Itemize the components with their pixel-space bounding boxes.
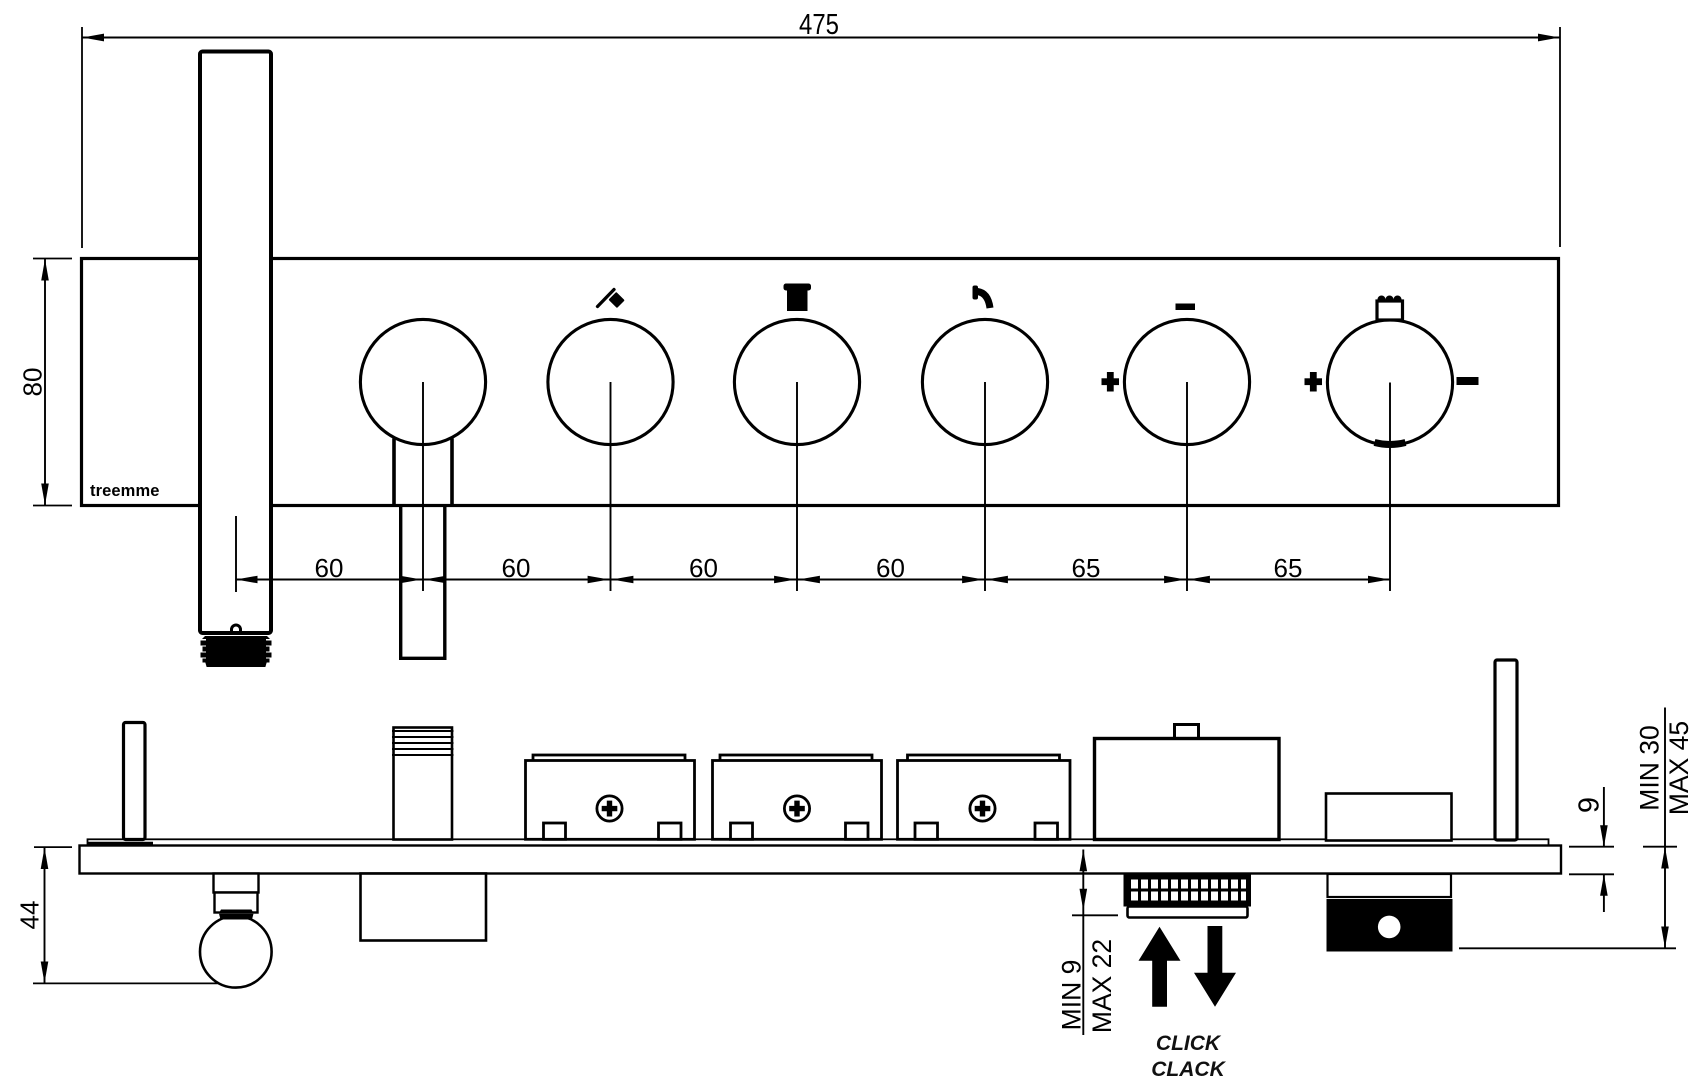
svg-text:MAX 22: MAX 22 bbox=[1087, 939, 1117, 1033]
svg-text:MIN 9: MIN 9 bbox=[1057, 960, 1087, 1031]
svg-text:65: 65 bbox=[1072, 553, 1101, 583]
svg-text:80: 80 bbox=[18, 368, 48, 397]
svg-text:9: 9 bbox=[1574, 797, 1606, 813]
svg-text:60: 60 bbox=[876, 553, 905, 583]
svg-text:CLICK: CLICK bbox=[1156, 1032, 1222, 1055]
svg-text:60: 60 bbox=[502, 553, 531, 583]
svg-text:MIN 30: MIN 30 bbox=[1635, 725, 1665, 810]
svg-text:475: 475 bbox=[799, 8, 839, 41]
svg-text:treemme: treemme bbox=[90, 482, 160, 500]
svg-text:60: 60 bbox=[689, 553, 718, 583]
svg-text:CLACK: CLACK bbox=[1151, 1058, 1226, 1078]
svg-text:MAX 45: MAX 45 bbox=[1664, 721, 1694, 815]
svg-text:65: 65 bbox=[1274, 553, 1303, 583]
svg-text:60: 60 bbox=[315, 553, 344, 583]
svg-text:44: 44 bbox=[15, 901, 45, 930]
